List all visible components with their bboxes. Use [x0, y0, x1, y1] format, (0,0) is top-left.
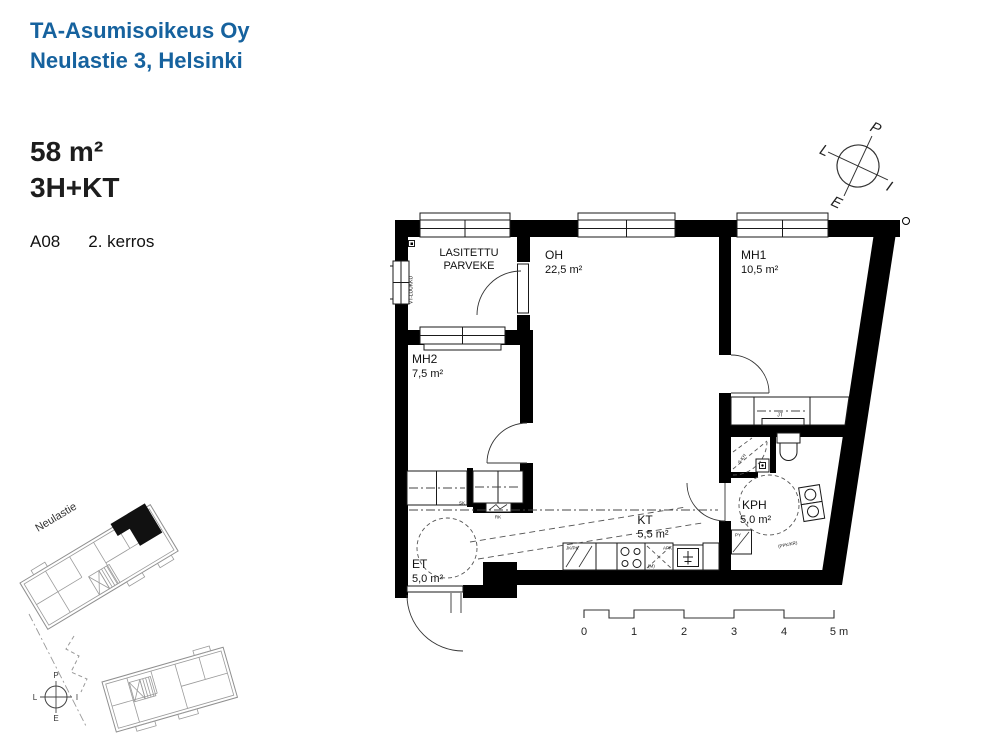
site-compass-icon: P L I E [33, 671, 78, 723]
windows [390, 213, 828, 350]
sink [673, 545, 703, 570]
scale-tick-0: 0 [581, 626, 587, 638]
washer-dryer-reservation [799, 485, 825, 522]
doors [407, 264, 769, 651]
room-area-mh1: 10,5 m² [741, 264, 779, 276]
electrical-panel-rk [486, 503, 511, 512]
scale-tick-2: 2 [681, 626, 687, 638]
street-label: Neulastie [33, 501, 78, 535]
scale-end: 5 m [830, 626, 848, 638]
label-rk: RK [495, 515, 501, 520]
mh2-door [487, 423, 527, 463]
room-label-parveke-2: PARVEKE [444, 260, 495, 272]
room-label-oh: OH [545, 248, 563, 262]
room-area-et: 5,0 m² [412, 573, 444, 585]
label-jt: JT [777, 413, 783, 419]
oh-window [578, 213, 675, 237]
corner-marker [903, 218, 910, 225]
floorplan-page: TA-Asumisoikeus Oy Neulastie 3, Helsinki… [0, 0, 1000, 750]
balcony-top-window [420, 213, 510, 237]
room-area-kt: 5,5 m² [637, 529, 669, 541]
kph-door [687, 483, 725, 521]
room-area-mh2: 7,5 m² [412, 368, 444, 380]
scale-bar: 0 1 2 3 4 5 m [581, 610, 848, 638]
counter-end [703, 543, 719, 570]
room-label-kt: KT [637, 513, 653, 527]
label-m: (M) [648, 564, 655, 569]
room-label-kph: KPH [742, 498, 767, 512]
site-compass-north: P [53, 671, 58, 680]
label-ppk-kr: (PPK/KR) [778, 540, 799, 549]
room-area-kph: 5,0 m² [740, 514, 772, 526]
company-name: TA-Asumisoikeus Oy [30, 16, 250, 46]
counter-segment [596, 543, 617, 570]
label-sk: SK [459, 501, 465, 506]
site-lower-building [101, 642, 239, 736]
balcony-left-window [390, 261, 409, 304]
toilet [777, 433, 800, 461]
apartment-code: A08 [30, 232, 60, 252]
site-compass-east: I [76, 693, 78, 702]
document-header: TA-Asumisoikeus Oy Neulastie 3, Helsinki [30, 16, 250, 76]
balcony-outlet-symbol [409, 241, 415, 247]
mh1-window [737, 213, 828, 237]
room-label-et: ET [412, 557, 428, 571]
site-compass-west: L [33, 693, 38, 702]
room-label-mh2: MH2 [412, 352, 438, 366]
apartment-type: 3H+KT [30, 170, 154, 206]
bathroom-fixtures [732, 433, 825, 554]
room-area-oh: 22,5 m² [545, 264, 583, 276]
label-jk-pk: JK/PK [566, 546, 579, 551]
mh2-balcony-window [420, 327, 505, 350]
apartment-code-row: A082. kerros [30, 232, 154, 252]
compass-east-label: I [884, 178, 895, 195]
entrance-door [407, 586, 463, 651]
label-vt-luukku: VT-LUUKKU [409, 276, 415, 304]
mh1-door [731, 355, 769, 393]
room-label-mh1: MH1 [741, 248, 767, 262]
label-apk: APK [663, 546, 672, 551]
apartment-location-marker [111, 503, 163, 553]
label-py: PY [735, 533, 741, 538]
apartment-floor: 2. kerros [88, 232, 154, 251]
apartment-area: 58 m² [30, 134, 154, 170]
compass-west-label: L [817, 141, 832, 160]
room-label-parveke-1: LASITETTU [439, 247, 498, 259]
stove [617, 543, 645, 570]
scale-tick-4: 4 [781, 626, 787, 638]
address: Neulastie 3, Helsinki [30, 46, 250, 76]
kitchen-units [563, 543, 719, 570]
site-path-dashed [66, 636, 87, 692]
compass-north-label: P [867, 119, 883, 139]
site-boundary-line [29, 614, 86, 726]
site-plan-svg: Neulastie P L I E [16, 486, 240, 746]
scale-tick-3: 3 [731, 626, 737, 638]
mh1-wardrobes-jt [731, 397, 849, 426]
apartment-info: 58 m² 3H+KT A082. kerros [30, 134, 154, 252]
site-compass-south: E [53, 714, 58, 723]
floor-plan-svg: LASITETTU PARVEKE OH 22,5 m² MH1 10,5 m²… [390, 208, 922, 652]
scale-tick-1: 1 [631, 626, 637, 638]
mh2-closets [407, 471, 523, 505]
